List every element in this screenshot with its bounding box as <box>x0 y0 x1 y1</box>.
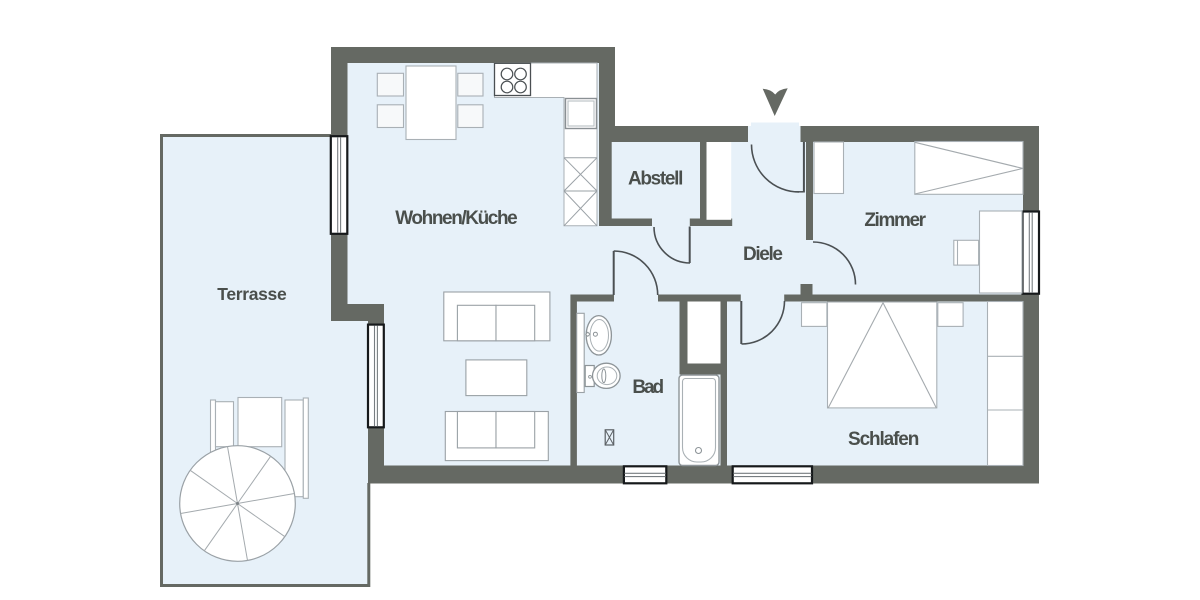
svg-text:Wohnen/Küche: Wohnen/Küche <box>395 208 518 229</box>
svg-text:Terrasse: Terrasse <box>217 284 287 304</box>
svg-text:Diele: Diele <box>743 244 783 265</box>
svg-text:Schlafen: Schlafen <box>848 429 919 450</box>
svg-text:Zimmer: Zimmer <box>864 210 926 231</box>
svg-text:Bad: Bad <box>632 377 664 398</box>
svg-text:Abstell: Abstell <box>628 169 683 190</box>
